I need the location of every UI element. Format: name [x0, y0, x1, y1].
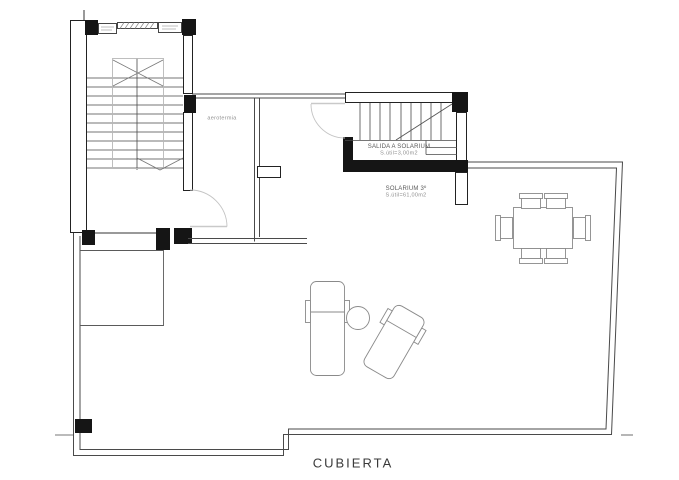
column [85, 20, 98, 35]
chair [520, 249, 543, 264]
wall-stub [258, 167, 281, 178]
dining-set [496, 194, 591, 264]
wall [343, 160, 468, 172]
side-table [347, 307, 370, 330]
column [174, 228, 192, 244]
door-swing-arc [190, 190, 227, 227]
room-label-solarium: SOLARIUM 3º [386, 186, 427, 192]
column [82, 230, 95, 245]
solarium-stair-door [311, 104, 345, 139]
stair-break-line [396, 104, 452, 140]
chair [520, 194, 543, 209]
aerotermia-room [188, 98, 307, 244]
dining-table [514, 208, 573, 249]
column [156, 228, 170, 250]
floor-plan-drawing [0, 0, 679, 480]
chair [496, 216, 513, 241]
loungers [306, 282, 431, 384]
floor-plan-canvas: aerotermia SALIDA A SOLARIUM S.útil=3,00… [0, 0, 679, 480]
stairwell-door [190, 190, 227, 227]
chair [545, 194, 568, 209]
room-label-salida: SALIDA A SOLARIUM [368, 144, 430, 150]
door-swing-arc [311, 104, 345, 138]
column [452, 92, 468, 112]
stairwell [71, 10, 228, 250]
stair-guard-line [113, 59, 164, 169]
vent-grille [118, 23, 158, 29]
column [182, 19, 196, 35]
equipment-box [99, 24, 117, 34]
column [184, 95, 196, 113]
chair [545, 249, 568, 264]
room-area-salida: S.útil=3,00m2 [380, 151, 418, 157]
chair [574, 216, 591, 241]
stair-break-lines [113, 60, 183, 170]
room-label-aerotermia: aerotermia [207, 116, 236, 122]
sun-lounger [306, 282, 350, 376]
plan-title: CUBIERTA [313, 457, 394, 470]
equipment-box [159, 23, 182, 33]
lower-roof-section [80, 251, 164, 326]
wall-stub [456, 173, 468, 205]
room-area-solarium: S.útil=61,00m2 [385, 193, 426, 199]
